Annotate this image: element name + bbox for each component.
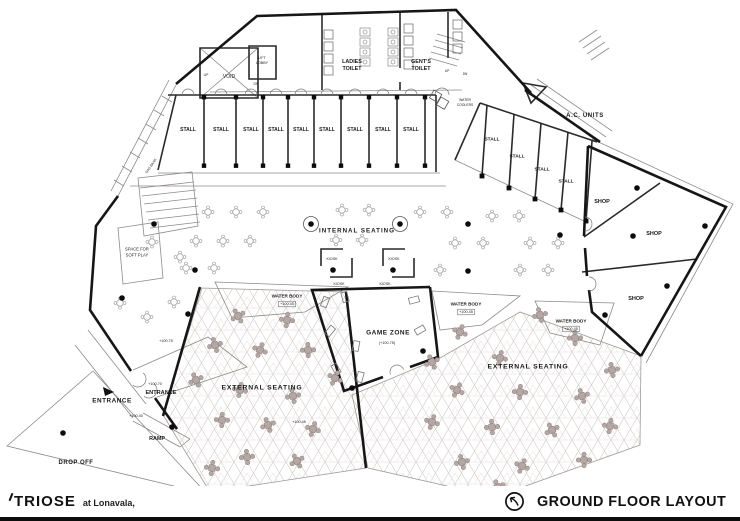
main-wall — [584, 146, 641, 356]
plan-label: RAMP — [149, 436, 165, 442]
plan-label: +100.45 — [459, 310, 473, 314]
basin-icon — [391, 50, 395, 54]
plan-label: +100.45 — [280, 302, 294, 306]
column-dot — [465, 268, 471, 274]
floor-plan-drawing: VOIDLIFTLOBBYLADIESTOILETGENT'STOILETUPD… — [0, 0, 740, 486]
toilet-cubicle-icon — [324, 66, 333, 75]
basin-icon — [391, 40, 395, 44]
plan-label: SPACE FOR — [125, 247, 149, 252]
plan-label: STALL — [484, 137, 499, 143]
plan-label: ENTRANCE — [145, 390, 176, 396]
plan-label: STALL — [403, 127, 419, 133]
partition-wall — [582, 259, 697, 272]
internal-table-icon — [486, 210, 498, 222]
partition-wall — [455, 103, 480, 160]
plan-label: DN — [463, 72, 468, 76]
internal-table-icon — [356, 234, 368, 246]
partition-wall — [509, 114, 514, 188]
external-seating-right-terrace — [352, 312, 641, 486]
plan-label: STALL — [558, 179, 573, 185]
door-arc-icon — [182, 89, 194, 95]
column-square — [533, 197, 538, 202]
main-wall — [176, 10, 531, 93]
column-square — [261, 95, 265, 99]
plan-label: +100.45 — [564, 327, 578, 331]
plan-label: TOILET — [342, 66, 362, 72]
column-square — [339, 95, 343, 99]
toilet-cubicle-icon — [453, 20, 462, 29]
door-arc-icon — [388, 363, 404, 374]
plan-label: KIOSK — [334, 282, 346, 286]
site-line — [429, 58, 457, 66]
internal-table-icon — [441, 206, 453, 218]
plan-label: KIOSK — [327, 257, 339, 261]
title-bar: TRIOSE at Lonavala, GROUND FLOOR LAYOUT — [0, 486, 740, 517]
column-square — [234, 95, 238, 99]
site-line — [111, 80, 169, 191]
column-dot — [630, 233, 636, 239]
basin-icon — [391, 60, 395, 64]
plan-label: WATER — [459, 98, 471, 102]
plan-label: UP — [204, 73, 209, 77]
plan-label: LOBBY — [256, 61, 269, 65]
site-line — [130, 152, 140, 158]
wash-counter-icon — [388, 38, 398, 46]
water-cooler-icon — [437, 97, 449, 109]
basin-icon — [363, 40, 367, 44]
plan-label: WATER BODY — [451, 302, 482, 307]
toilet-cubicle-icon — [324, 30, 333, 39]
sheet-title-block: GROUND FLOOR LAYOUT — [504, 491, 730, 512]
column-dot — [397, 221, 403, 227]
site-line — [148, 214, 199, 220]
column-dot — [169, 424, 175, 430]
column-square — [312, 164, 316, 168]
plan-label: SHOP — [594, 199, 610, 205]
site-line — [140, 182, 194, 188]
door-arc-icon — [133, 373, 149, 390]
plan-label: UP — [445, 69, 449, 73]
plan-label: STALL — [509, 154, 524, 160]
internal-table-icon — [513, 210, 525, 222]
internal-table-icon — [514, 264, 526, 276]
column-dot — [557, 232, 563, 238]
internal-table-icon — [180, 262, 192, 274]
plan-label: DROP OFF — [59, 460, 94, 466]
column-square — [234, 164, 238, 168]
door-arc-icon — [589, 277, 596, 291]
internal-table-icon — [542, 264, 554, 276]
plan-label: EXTERNAL SEATING — [222, 385, 303, 392]
plan-label: SHOP — [628, 296, 644, 302]
internal-table-icon — [190, 235, 202, 247]
basin-icon — [363, 50, 367, 54]
basin-icon — [363, 60, 367, 64]
internal-table-icon — [336, 204, 348, 216]
plan-label: WATER BODY — [272, 294, 303, 299]
internal-table-icon — [244, 235, 256, 247]
column-square — [367, 164, 371, 168]
column-dot — [664, 283, 670, 289]
internal-table-icon — [208, 262, 220, 274]
site-line — [88, 330, 146, 404]
plan-label: SOFT PLAY — [126, 253, 149, 258]
plan-label: STALL — [319, 127, 335, 133]
wash-counter-icon — [360, 28, 370, 36]
game-machine-icon — [408, 296, 419, 304]
internal-table-icon — [363, 204, 375, 216]
column-square — [202, 164, 206, 168]
plan-label: +100.75 — [159, 339, 173, 343]
column-square — [559, 208, 564, 213]
internal-table-icon — [168, 296, 180, 308]
internal-table-icon — [202, 206, 214, 218]
column-square — [480, 174, 485, 179]
toilet-cubicle-icon — [324, 42, 333, 51]
toilet-cubicle-icon — [404, 48, 413, 57]
door-arc-icon — [349, 89, 361, 95]
basin-icon — [363, 30, 367, 34]
door-arc-icon — [405, 89, 417, 95]
wash-counter-icon — [388, 28, 398, 36]
site-line — [531, 85, 606, 137]
column-dot — [420, 348, 426, 354]
column-dot — [330, 267, 336, 273]
plan-label: LADIES — [342, 59, 362, 65]
plan-label: (+100.75) — [379, 341, 396, 345]
location-text: at Lonavala, — [83, 498, 135, 508]
plan-label: +100.40 — [129, 414, 143, 418]
internal-table-icon — [477, 237, 489, 249]
site-line — [162, 96, 172, 102]
partition-wall — [535, 123, 541, 199]
plan-label: ENTRANCE — [92, 398, 132, 405]
brand-block: TRIOSE at Lonavala, — [10, 493, 135, 510]
column-square — [367, 95, 371, 99]
column-dot — [308, 221, 314, 227]
column-dot — [192, 267, 198, 273]
toilet-cubicle-icon — [404, 36, 413, 45]
site-line — [144, 198, 197, 204]
main-wall — [588, 146, 726, 356]
plan-label: WATER BODY — [556, 319, 587, 324]
wash-counter-icon — [388, 48, 398, 56]
column-square — [312, 95, 316, 99]
logo-text: TRIOSE — [14, 493, 76, 510]
wash-counter-icon — [360, 38, 370, 46]
partition-walls — [158, 12, 697, 277]
partition-wall — [158, 95, 176, 170]
plan-label: GENT'S — [411, 59, 431, 65]
column-square — [584, 219, 589, 224]
plan-label: INTERNAL SEATING — [319, 228, 395, 235]
column-dot — [60, 430, 66, 436]
internal-table-icon — [141, 311, 153, 323]
column-dot — [634, 185, 640, 191]
column-dot — [151, 221, 157, 227]
north-arrow-icon — [504, 491, 525, 512]
game-machine-icon — [414, 325, 426, 335]
column-square — [395, 164, 399, 168]
entrance-arrow-icon — [103, 387, 114, 396]
column-square — [286, 95, 290, 99]
site-line — [118, 85, 176, 196]
site-line — [75, 345, 133, 418]
column-dot — [390, 267, 396, 273]
column-dot — [349, 385, 355, 391]
toilet-cubicle-icon — [324, 54, 333, 63]
door-arc-icon — [295, 89, 307, 95]
column-square — [286, 164, 290, 168]
plan-label: A.C. UNITS — [566, 113, 604, 119]
site-line — [122, 166, 132, 172]
plan-label: DN — [254, 82, 259, 86]
plan-label: STALL — [180, 127, 196, 133]
door-arc-icon — [270, 89, 282, 95]
column-square — [423, 95, 427, 99]
column-square — [261, 164, 265, 168]
internal-table-icon — [174, 251, 186, 263]
plan-label: LIFT — [258, 56, 266, 60]
triose-logo: TRIOSE — [10, 493, 76, 510]
internal-table-icon — [414, 206, 426, 218]
sheet-title: GROUND FLOOR LAYOUT — [537, 493, 726, 510]
site-line — [142, 190, 196, 196]
plan-label: STALL — [243, 127, 259, 133]
column-dot — [119, 295, 125, 301]
column-square — [339, 164, 343, 168]
plan-label: VOID — [223, 74, 236, 80]
plan-label: +100.70 — [148, 382, 162, 386]
internal-table-icon — [449, 237, 461, 249]
plan-label: KIOSK — [380, 282, 392, 286]
internal-table-icon — [257, 206, 269, 218]
partition-wall — [584, 183, 660, 237]
plan-label: COOLERS — [457, 103, 474, 107]
column-square — [202, 95, 206, 99]
plan-label: STALL — [268, 127, 284, 133]
door-arc-icon — [377, 89, 389, 95]
wash-counter-icon — [388, 58, 398, 66]
wash-counter-icon — [360, 48, 370, 56]
internal-table-icon — [217, 235, 229, 247]
partition-wall — [561, 132, 568, 210]
plan-label: STALL — [213, 127, 229, 133]
plan-label: GAME ZONE — [366, 330, 410, 337]
floor-plan-area: VOIDLIFTLOBBYLADIESTOILETGENT'STOILETUPD… — [0, 0, 740, 486]
plan-label: EXTERNAL SEATING — [488, 364, 569, 371]
column-square — [423, 164, 427, 168]
internal-table-icon — [230, 206, 242, 218]
column-dot — [185, 311, 191, 317]
internal-table-icon — [524, 237, 536, 249]
plan-label: KIOSK — [389, 257, 401, 261]
basin-icon — [391, 30, 395, 34]
internal-table-icon — [434, 264, 446, 276]
external-table-icon — [450, 322, 470, 342]
column-dot — [465, 221, 471, 227]
column-square — [507, 186, 512, 191]
floor-plan-page: VOIDLIFTLOBBYLADIESTOILETGENT'STOILETUPD… — [0, 0, 740, 521]
plan-label: GAS BANK — [144, 157, 158, 174]
column-square — [395, 95, 399, 99]
plan-label: STALL — [534, 167, 549, 173]
internal-table-icon — [552, 237, 564, 249]
toilet-cubicle-icon — [404, 24, 413, 33]
plan-label: STALL — [293, 127, 309, 133]
plan-label: SHOP — [646, 231, 662, 237]
plan-label: TOILET — [411, 66, 431, 72]
site-line — [146, 206, 198, 212]
plan-label: STALL — [347, 127, 363, 133]
plan-label: +100.45 — [292, 420, 306, 424]
logo-tick-icon — [9, 493, 14, 501]
internal-table-icon — [330, 234, 342, 246]
column-dot — [702, 223, 708, 229]
plan-label: STALL — [375, 127, 391, 133]
column-dot — [602, 312, 608, 318]
site-line — [455, 160, 586, 222]
bottom-rule — [0, 517, 740, 521]
